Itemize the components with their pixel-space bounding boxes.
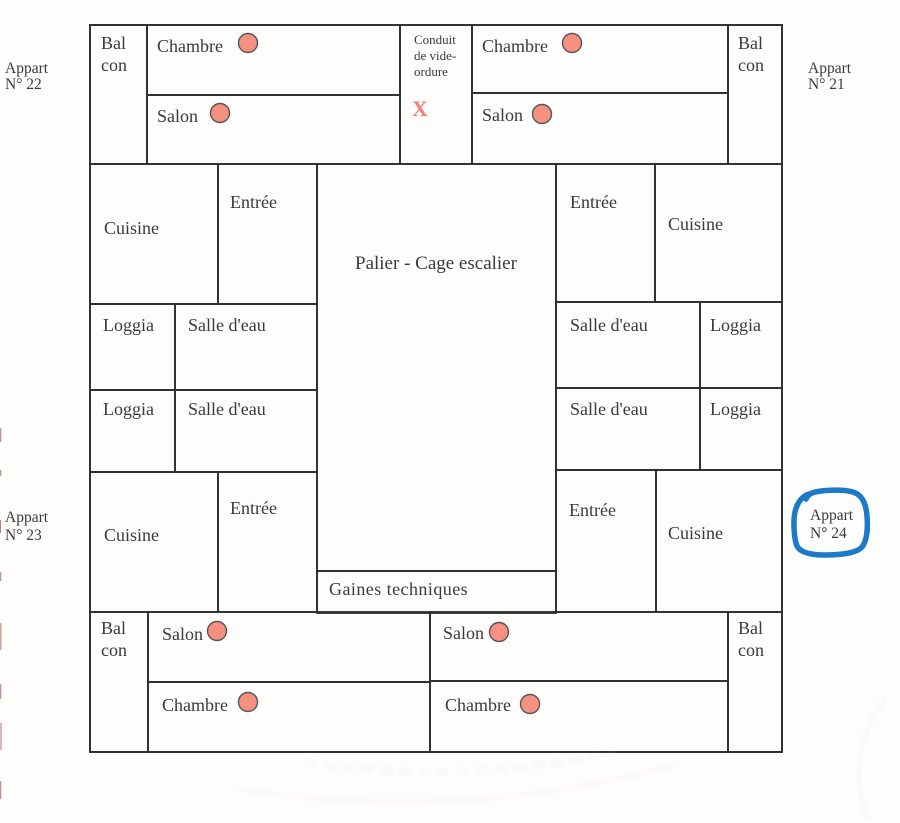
svg-text:N° 24: N° 24 xyxy=(810,525,847,542)
svg-text:Salle d'eau: Salle d'eau xyxy=(188,315,266,335)
svg-text:N° 23: N° 23 xyxy=(5,527,42,544)
svg-text:Appart: Appart xyxy=(810,507,854,524)
svg-text:Loggia: Loggia xyxy=(710,399,761,419)
svg-text:Chambre: Chambre xyxy=(162,695,228,715)
svg-text:Salon: Salon xyxy=(443,623,484,643)
svg-text:Chambre: Chambre xyxy=(482,36,548,56)
svg-text:Appart: Appart xyxy=(808,60,852,77)
svg-text:N° 22: N° 22 xyxy=(5,76,42,93)
svg-text:Chambre: Chambre xyxy=(157,36,223,56)
svg-text:Entrée: Entrée xyxy=(230,192,277,212)
svg-text:Appart: Appart xyxy=(5,60,49,77)
svg-text:Cuisine: Cuisine xyxy=(104,525,159,545)
svg-text:Bal: Bal xyxy=(101,33,126,53)
svg-text:Bal: Bal xyxy=(738,618,763,638)
svg-text:Palier - Cage escalier: Palier - Cage escalier xyxy=(355,253,518,274)
svg-text:Entrée: Entrée xyxy=(570,192,617,212)
svg-text:Cuisine: Cuisine xyxy=(668,214,723,234)
svg-text:Salle d'eau: Salle d'eau xyxy=(570,399,648,419)
svg-text:Cuisine: Cuisine xyxy=(104,218,159,238)
svg-text:Cuisine: Cuisine xyxy=(668,523,723,543)
svg-text:con: con xyxy=(101,55,127,75)
svg-text:con: con xyxy=(101,640,127,660)
svg-text:de vide-: de vide- xyxy=(414,48,456,63)
svg-text:ordure: ordure xyxy=(414,64,448,79)
svg-text:Bal: Bal xyxy=(101,618,126,638)
svg-text:Salon: Salon xyxy=(482,105,523,125)
svg-text:Bal: Bal xyxy=(738,33,763,53)
svg-text:Appart: Appart xyxy=(5,509,49,526)
svg-text:Salle d'eau: Salle d'eau xyxy=(570,315,648,335)
svg-text:Loggia: Loggia xyxy=(710,315,761,335)
svg-text:Chambre: Chambre xyxy=(445,695,511,715)
svg-text:Loggia: Loggia xyxy=(103,399,154,419)
svg-text:N° 21: N° 21 xyxy=(808,76,845,93)
svg-text:Salon: Salon xyxy=(162,624,203,644)
svg-text:Gaines techniques: Gaines techniques xyxy=(329,579,468,599)
svg-text:Conduit: Conduit xyxy=(414,32,456,47)
svg-text:X: X xyxy=(412,96,428,121)
svg-text:con: con xyxy=(738,55,764,75)
svg-text:Entrée: Entrée xyxy=(230,498,277,518)
svg-text:Loggia: Loggia xyxy=(103,315,154,335)
svg-text:con: con xyxy=(738,640,764,660)
svg-text:Salle d'eau: Salle d'eau xyxy=(188,399,266,419)
svg-text:Salon: Salon xyxy=(157,106,198,126)
svg-text:Entrée: Entrée xyxy=(569,500,616,520)
